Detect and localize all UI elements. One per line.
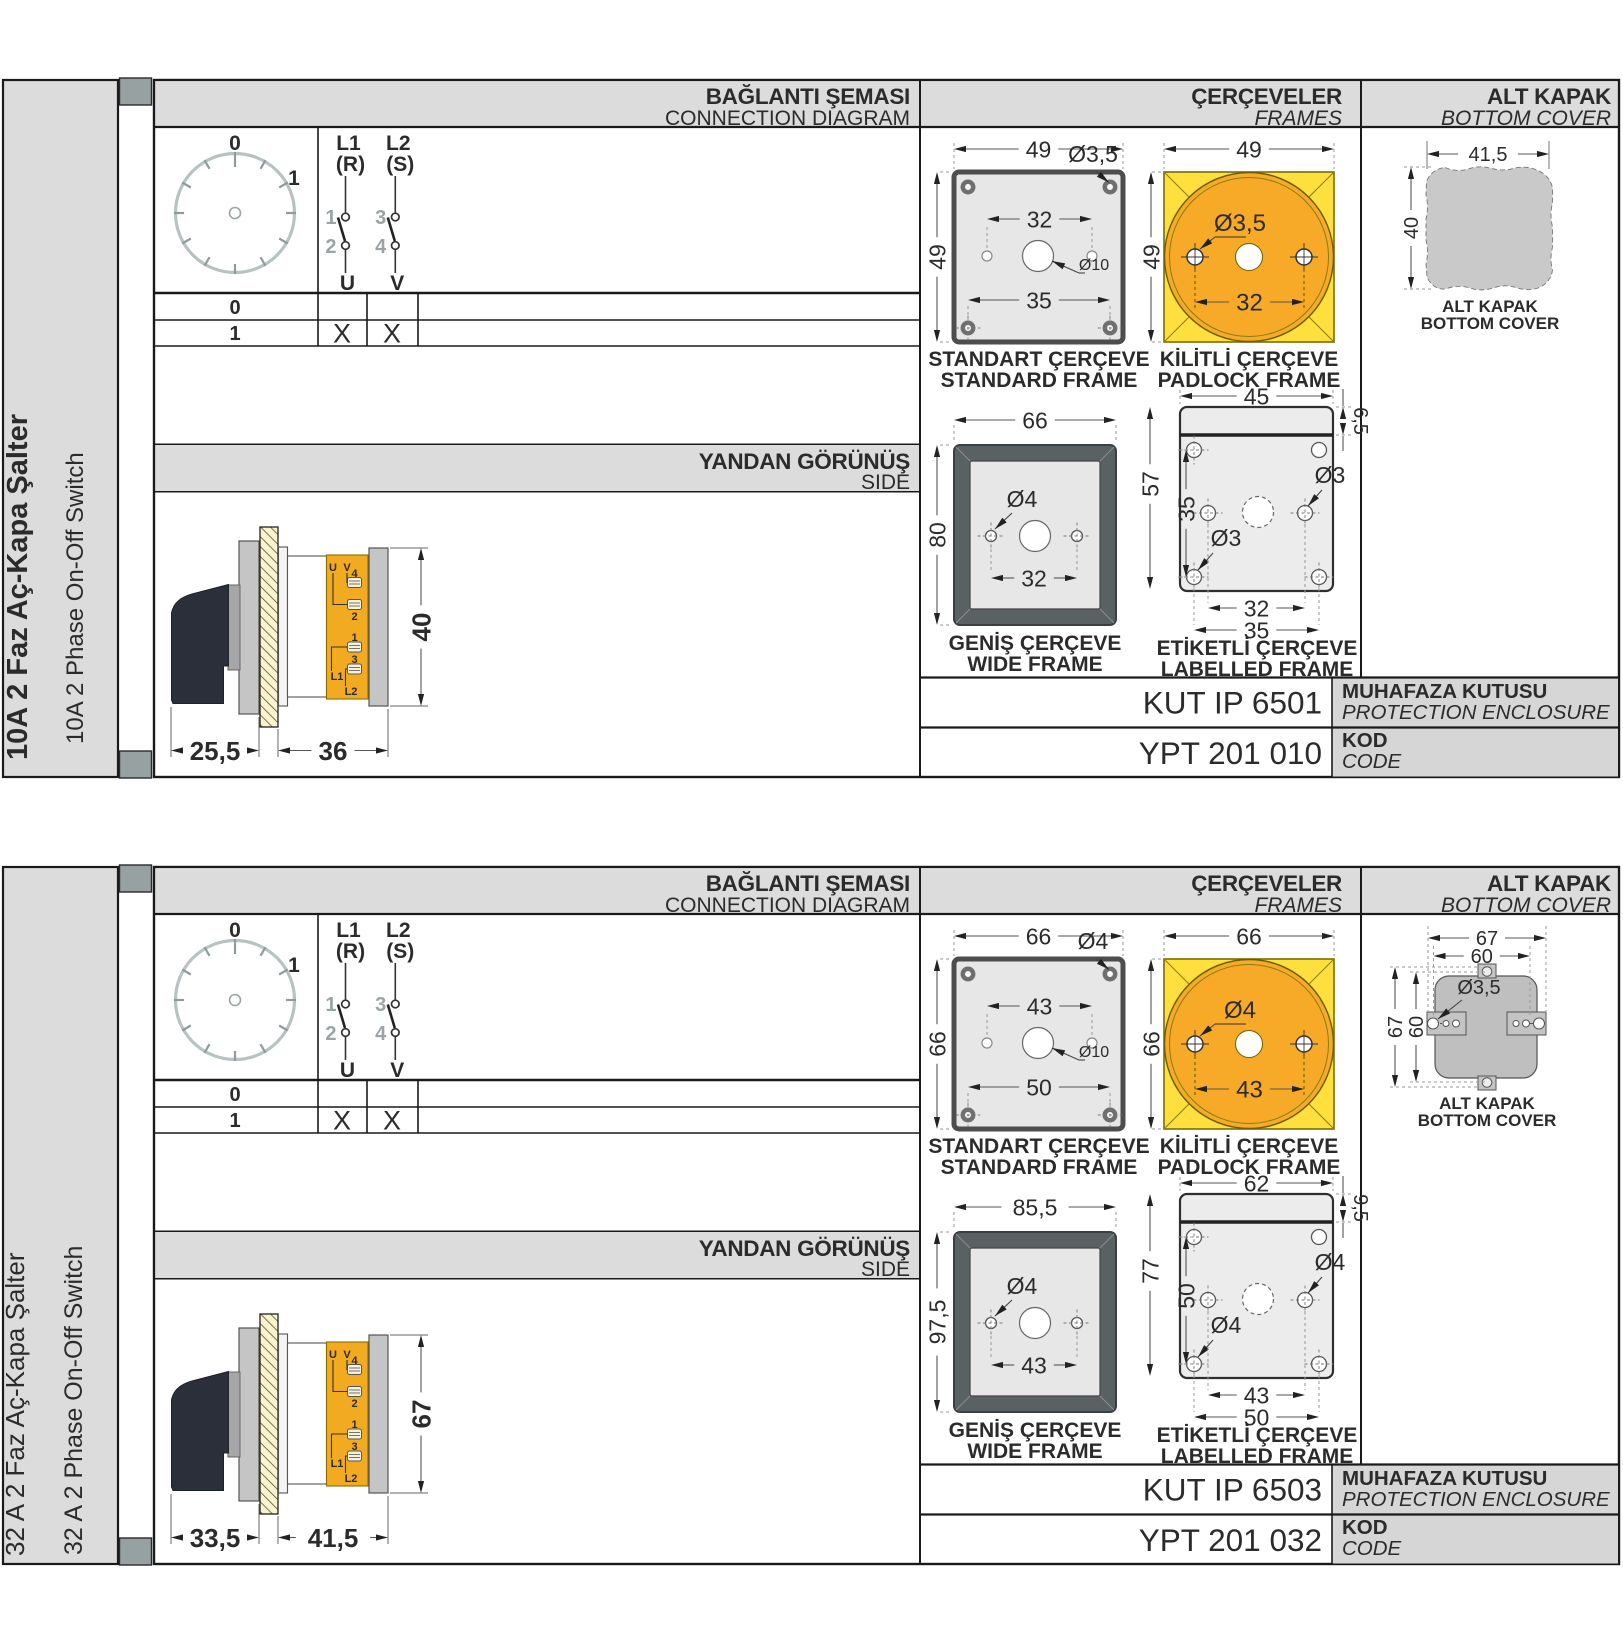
svg-text:1: 1	[351, 1419, 357, 1431]
svg-text:85,5: 85,5	[1013, 1194, 1058, 1220]
svg-text:V: V	[343, 1349, 351, 1361]
svg-text:KİLİTLİ ÇERÇEVE: KİLİTLİ ÇERÇEVE	[1160, 1135, 1339, 1158]
svg-text:49: 49	[1138, 244, 1164, 270]
svg-text:2: 2	[325, 236, 336, 258]
svg-text:41,5: 41,5	[1469, 144, 1508, 166]
svg-text:66: 66	[1026, 923, 1052, 949]
svg-text:32: 32	[1021, 565, 1047, 591]
svg-text:4: 4	[375, 1023, 387, 1045]
svg-text:40: 40	[1401, 217, 1423, 239]
svg-text:YPT 201 032: YPT 201 032	[1139, 1522, 1322, 1558]
svg-text:GENİŞ ÇERÇEVE: GENİŞ ÇERÇEVE	[949, 632, 1122, 655]
svg-text:WIDE FRAME: WIDE FRAME	[967, 1440, 1102, 1463]
svg-text:BOTTOM COVER: BOTTOM COVER	[1421, 314, 1560, 333]
svg-text:STANDART ÇERÇEVE: STANDART ÇERÇEVE	[928, 348, 1149, 371]
svg-text:41,5: 41,5	[308, 1523, 359, 1553]
svg-text:1: 1	[288, 954, 300, 977]
svg-text:3: 3	[351, 1441, 357, 1453]
svg-text:97,5: 97,5	[924, 1300, 950, 1345]
svg-text:66: 66	[1138, 1031, 1164, 1057]
svg-text:Ø4: Ø4	[1007, 1273, 1038, 1299]
svg-text:V: V	[390, 1059, 404, 1082]
svg-text:Ø3,5: Ø3,5	[1214, 210, 1266, 237]
svg-text:43: 43	[1236, 1077, 1263, 1104]
svg-text:Ø4: Ø4	[1224, 997, 1256, 1024]
svg-text:Ø4: Ø4	[1078, 928, 1109, 954]
svg-text:0: 0	[229, 1084, 240, 1106]
svg-text:GENİŞ ÇERÇEVE: GENİŞ ÇERÇEVE	[949, 1419, 1122, 1442]
svg-text:50: 50	[1173, 1283, 1199, 1309]
svg-text:(S): (S)	[386, 940, 414, 963]
svg-text:V: V	[390, 272, 404, 295]
svg-text:BAĞLANTI ŞEMASI: BAĞLANTI ŞEMASI	[706, 871, 910, 896]
svg-text:1: 1	[229, 1110, 240, 1132]
svg-text:Ø10: Ø10	[1079, 1044, 1109, 1061]
svg-text:V: V	[343, 562, 351, 574]
svg-text:CONNECTION DIAGRAM: CONNECTION DIAGRAM	[665, 894, 910, 917]
svg-text:(S): (S)	[386, 153, 414, 176]
svg-text:Ø3,5: Ø3,5	[1457, 977, 1500, 999]
svg-text:ÇERÇEVELER: ÇERÇEVELER	[1191, 84, 1342, 109]
svg-text:2: 2	[325, 1023, 336, 1045]
svg-text:60: 60	[1471, 946, 1493, 968]
svg-text:25,5: 25,5	[190, 736, 241, 766]
svg-text:60: 60	[1406, 1016, 1428, 1038]
svg-text:ETİKETLİ ÇERÇEVE: ETİKETLİ ÇERÇEVE	[1157, 637, 1358, 660]
svg-text:32 A 2 Faz Aç-Kapa Şalter: 32 A 2 Faz Aç-Kapa Şalter	[0, 1252, 30, 1556]
svg-text:ETİKETLİ ÇERÇEVE: ETİKETLİ ÇERÇEVE	[1157, 1424, 1358, 1447]
svg-text:57: 57	[1137, 471, 1163, 497]
svg-text:KUT IP 6501: KUT IP 6501	[1143, 685, 1322, 721]
svg-text:L2: L2	[386, 132, 411, 155]
svg-text:U: U	[340, 272, 355, 295]
svg-text:32: 32	[1027, 206, 1053, 232]
svg-text:CONNECTION DIAGRAM: CONNECTION DIAGRAM	[665, 107, 910, 130]
svg-text:62: 62	[1244, 1170, 1270, 1196]
svg-text:L1: L1	[331, 1458, 344, 1470]
svg-text:4: 4	[351, 1355, 358, 1367]
svg-text:80: 80	[924, 522, 950, 548]
svg-text:STANDARD FRAME: STANDARD FRAME	[941, 369, 1138, 392]
svg-text:ALT KAPAK: ALT KAPAK	[1487, 84, 1612, 109]
svg-text:49: 49	[1026, 136, 1052, 162]
svg-text:6,5: 6,5	[1349, 407, 1371, 435]
svg-text:X: X	[383, 319, 401, 349]
svg-text:KOD: KOD	[1342, 729, 1388, 752]
svg-text:2: 2	[351, 611, 357, 623]
svg-text:32 A 2 Phase On-Off Switch: 32 A 2 Phase On-Off Switch	[60, 1246, 88, 1555]
svg-text:43: 43	[1027, 993, 1053, 1019]
svg-text:43: 43	[1021, 1352, 1047, 1378]
svg-text:Ø10: Ø10	[1079, 257, 1109, 274]
svg-text:ALT KAPAK: ALT KAPAK	[1487, 871, 1612, 896]
svg-text:Ø3,5: Ø3,5	[1068, 141, 1118, 167]
svg-text:BOTTOM COVER: BOTTOM COVER	[1441, 107, 1611, 130]
svg-text:1: 1	[325, 207, 336, 229]
svg-text:(R): (R)	[336, 940, 365, 963]
svg-text:45: 45	[1244, 383, 1270, 409]
svg-text:X: X	[333, 1106, 351, 1136]
svg-text:X: X	[383, 1106, 401, 1136]
svg-text:L1: L1	[336, 132, 361, 155]
svg-text:49: 49	[1236, 136, 1262, 162]
svg-text:50: 50	[1026, 1074, 1052, 1100]
svg-text:FRAMES: FRAMES	[1254, 107, 1342, 130]
svg-text:SIDE: SIDE	[861, 1258, 910, 1281]
svg-text:U: U	[329, 562, 337, 574]
svg-text:66: 66	[924, 1031, 950, 1057]
svg-text:36: 36	[319, 736, 348, 766]
svg-text:32: 32	[1236, 290, 1263, 317]
svg-text:0: 0	[229, 132, 241, 155]
svg-text:BAĞLANTI ŞEMASI: BAĞLANTI ŞEMASI	[706, 84, 910, 109]
svg-text:MUHAFAZA KUTUSU: MUHAFAZA KUTUSU	[1342, 1467, 1547, 1490]
svg-text:Ø3: Ø3	[1211, 525, 1242, 551]
svg-text:STANDARD FRAME: STANDARD FRAME	[941, 1156, 1138, 1179]
svg-text:BOTTOM COVER: BOTTOM COVER	[1441, 894, 1611, 917]
svg-text:X: X	[333, 319, 351, 349]
svg-text:CODE: CODE	[1342, 1537, 1402, 1560]
svg-text:Ø4: Ø4	[1211, 1312, 1242, 1338]
svg-text:ÇERÇEVELER: ÇERÇEVELER	[1191, 871, 1342, 896]
svg-text:SIDE: SIDE	[861, 471, 910, 494]
svg-text:66: 66	[1236, 923, 1262, 949]
svg-text:10A 2 Phase On-Off Switch: 10A 2 Phase On-Off Switch	[62, 452, 89, 744]
svg-text:WIDE FRAME: WIDE FRAME	[967, 653, 1102, 676]
svg-text:49: 49	[924, 244, 950, 270]
svg-text:L1: L1	[331, 671, 344, 683]
svg-text:U: U	[340, 1059, 355, 1082]
svg-text:1: 1	[325, 994, 336, 1016]
svg-text:10A 2 Faz Aç-Kapa Şalter: 10A 2 Faz Aç-Kapa Şalter	[2, 414, 34, 760]
svg-text:PROTECTION ENCLOSURE: PROTECTION ENCLOSURE	[1342, 701, 1610, 724]
svg-text:3: 3	[351, 654, 357, 666]
svg-text:9,5: 9,5	[1349, 1194, 1371, 1222]
svg-text:0: 0	[229, 297, 240, 319]
svg-text:FRAMES: FRAMES	[1254, 894, 1342, 917]
svg-text:L2: L2	[345, 1473, 358, 1485]
svg-text:Ø4: Ø4	[1007, 486, 1038, 512]
svg-text:(R): (R)	[336, 153, 365, 176]
svg-text:3: 3	[375, 994, 386, 1016]
svg-text:1: 1	[351, 632, 357, 644]
svg-text:L2: L2	[386, 919, 411, 942]
svg-text:0: 0	[229, 919, 241, 942]
svg-text:KUT IP 6503: KUT IP 6503	[1143, 1472, 1322, 1508]
svg-text:67: 67	[1385, 1016, 1407, 1038]
svg-text:MUHAFAZA KUTUSU: MUHAFAZA KUTUSU	[1342, 680, 1547, 703]
svg-text:1: 1	[288, 167, 300, 190]
svg-text:4: 4	[351, 568, 358, 580]
svg-text:35: 35	[1173, 496, 1199, 522]
svg-text:35: 35	[1026, 287, 1052, 313]
svg-text:3: 3	[375, 207, 386, 229]
svg-text:KİLİTLİ ÇERÇEVE: KİLİTLİ ÇERÇEVE	[1160, 348, 1339, 371]
svg-text:PROTECTION ENCLOSURE: PROTECTION ENCLOSURE	[1342, 1488, 1610, 1511]
svg-text:Ø3: Ø3	[1315, 462, 1346, 488]
svg-text:STANDART ÇERÇEVE: STANDART ÇERÇEVE	[928, 1135, 1149, 1158]
svg-text:67: 67	[406, 1400, 436, 1429]
svg-text:KOD: KOD	[1342, 1516, 1388, 1539]
svg-text:66: 66	[1022, 407, 1048, 433]
svg-text:40: 40	[406, 613, 436, 642]
svg-text:2: 2	[351, 1398, 357, 1410]
svg-text:CODE: CODE	[1342, 750, 1402, 773]
svg-text:77: 77	[1137, 1258, 1163, 1284]
svg-text:4: 4	[375, 236, 387, 258]
svg-text:YPT 201 010: YPT 201 010	[1139, 735, 1322, 771]
svg-text:BOTTOM COVER: BOTTOM COVER	[1418, 1111, 1557, 1130]
svg-text:L1: L1	[336, 919, 361, 942]
svg-text:U: U	[329, 1349, 337, 1361]
svg-text:1: 1	[229, 323, 240, 345]
svg-text:L2: L2	[345, 686, 358, 698]
svg-text:33,5: 33,5	[190, 1523, 241, 1553]
svg-text:Ø4: Ø4	[1315, 1249, 1346, 1275]
